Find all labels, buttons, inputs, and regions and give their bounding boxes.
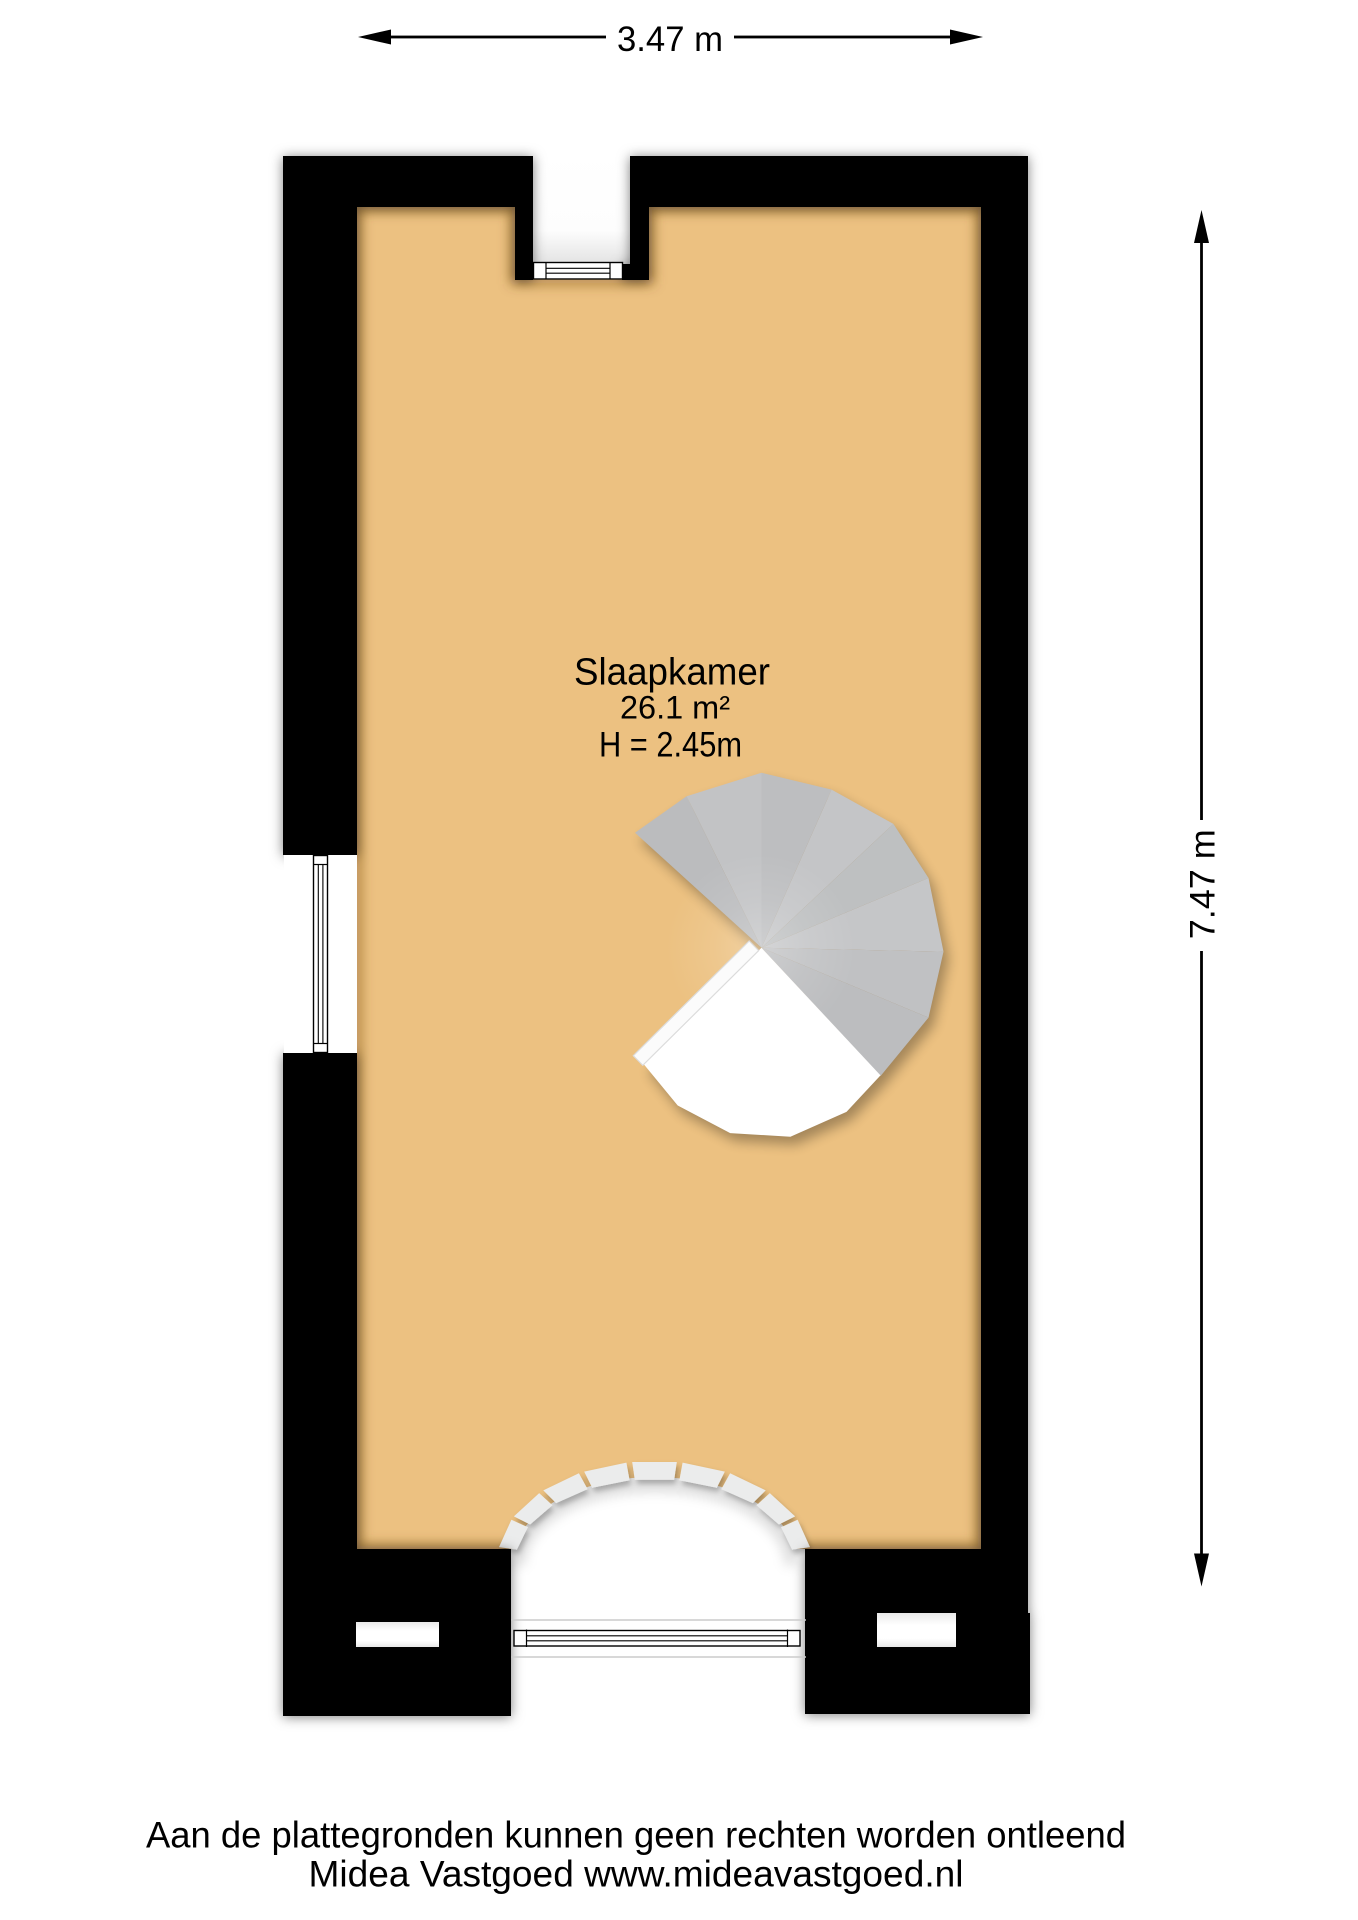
svg-text:26.1 m²: 26.1 m² bbox=[620, 690, 730, 726]
svg-text:Slaapkamer: Slaapkamer bbox=[574, 651, 770, 693]
svg-text:3.47 m: 3.47 m bbox=[617, 20, 723, 59]
svg-text:7.47 m: 7.47 m bbox=[1184, 829, 1223, 939]
svg-text:H = 2.45m: H = 2.45m bbox=[599, 726, 742, 765]
svg-text:Midea Vastgoed www.mideavastgo: Midea Vastgoed www.mideavastgoed.nl bbox=[309, 1854, 964, 1895]
svg-text:Aan de plattegronden kunnen ge: Aan de plattegronden kunnen geen rechten… bbox=[146, 1815, 1126, 1856]
